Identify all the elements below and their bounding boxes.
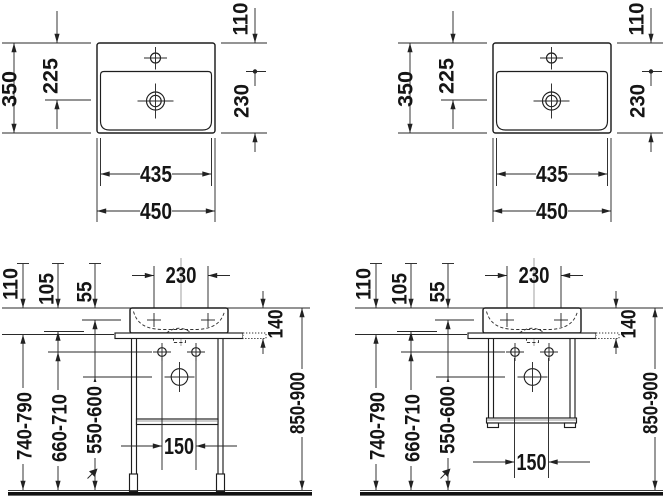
console-foot-right (217, 474, 225, 492)
console-foot-left (130, 474, 138, 492)
dim-deck-depth (252, 8, 257, 43)
label-overall-depth: 350 (0, 71, 21, 107)
plan-view-right (394, 3, 663, 225)
label-rim-to-taps: 55 (73, 281, 96, 302)
label-tap-spacing: 230 (166, 262, 197, 288)
label-fixing-spacing-right: 150 (517, 449, 547, 475)
label-floor-to-drain: 550-600 (83, 386, 106, 454)
label-bowl-width: 435 (140, 161, 172, 187)
basin-front (115, 308, 266, 343)
console-plate (115, 333, 243, 339)
label-floor-to-rim: 850-900 (286, 372, 309, 434)
technical-drawing-sheet: 350 225 110 230 435 450 (0, 0, 667, 500)
fixing-holes (153, 343, 205, 361)
floor-line-right (360, 491, 663, 494)
label-floor-to-fixings: 660-710 (48, 394, 71, 462)
console-plate-hidden-extension (243, 333, 266, 339)
console-bottom-rail (487, 418, 577, 423)
label-deck-depth: 110 (229, 3, 252, 36)
drain-outlet (165, 362, 195, 392)
label-fixing-spacing: 150 (164, 433, 194, 459)
dim-fixing-spacing-left: 150 (121, 358, 237, 470)
plan-view: 350 225 110 230 435 450 (0, 3, 267, 225)
console-crossbar (137, 419, 219, 425)
label-overall-width: 450 (140, 198, 172, 224)
basin-plan-outline (97, 43, 215, 133)
floor-line-left (8, 491, 312, 494)
front-view: 110 105 55 740-790 660-710 550-600 850-9… (0, 258, 310, 490)
label-drain-offset: 225 (39, 58, 62, 94)
label-bowl-depth: 230 (230, 84, 253, 118)
front-view-right (352, 258, 663, 490)
rail-bracket-right (565, 423, 576, 428)
label-rim-to-plate: 105 (35, 273, 58, 305)
washbasin-dimension-drawing: 350 225 110 230 435 450 (0, 0, 667, 500)
label-rim-to-underside: 110 (0, 268, 22, 300)
label-basin-height: 140 (264, 310, 287, 339)
rail-bracket-left (488, 423, 499, 428)
label-floor-to-underside: 740-790 (13, 392, 36, 460)
